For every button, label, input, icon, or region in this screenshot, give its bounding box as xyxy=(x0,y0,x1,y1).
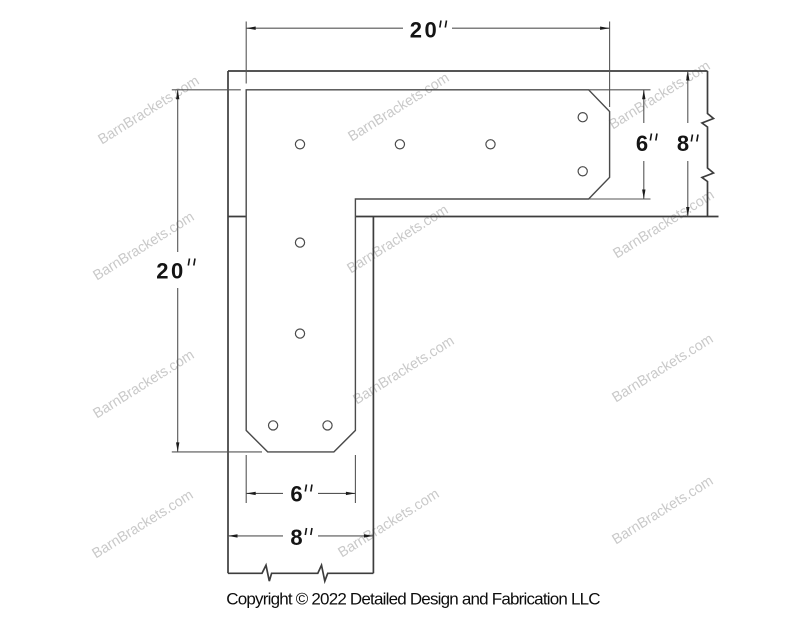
svg-text:8: 8 xyxy=(677,131,689,156)
svg-text:6: 6 xyxy=(636,131,648,156)
svg-text:20: 20 xyxy=(156,259,185,284)
svg-text:20: 20 xyxy=(410,18,439,43)
svg-text:Copyright © 2022 Detailed Desi: Copyright © 2022 Detailed Design and Fab… xyxy=(226,590,600,609)
svg-text:6: 6 xyxy=(290,481,302,506)
svg-text:8: 8 xyxy=(290,525,302,550)
